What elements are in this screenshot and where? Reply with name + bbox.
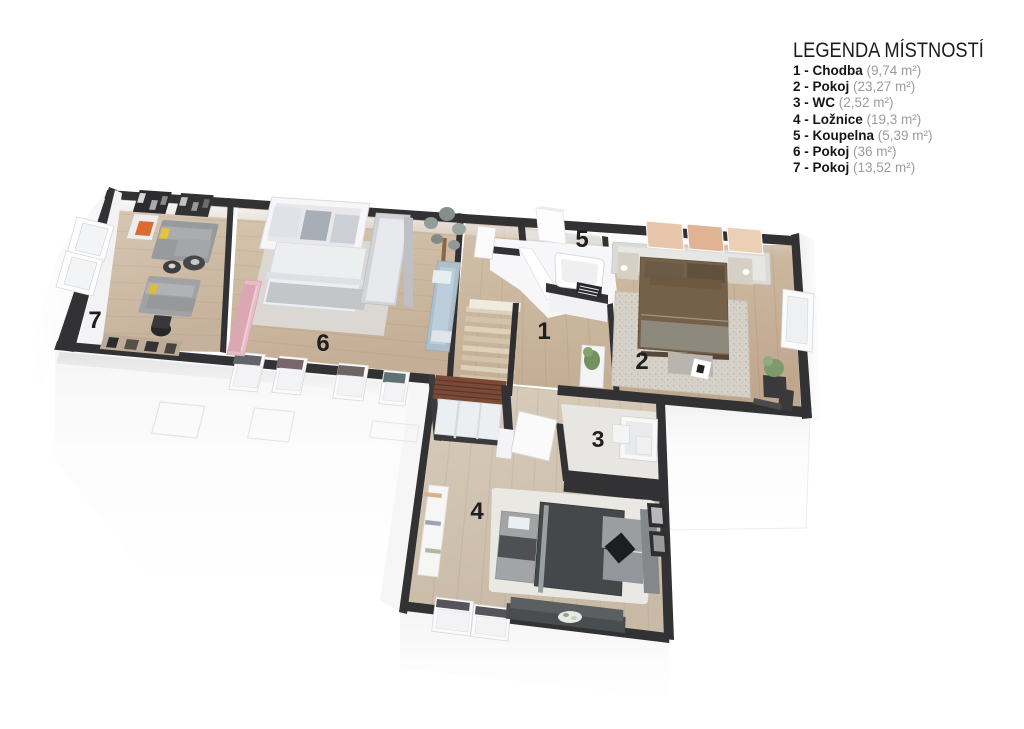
svg-text:2: 2 xyxy=(635,348,648,375)
svg-text:4: 4 xyxy=(470,498,484,525)
svg-text:3: 3 xyxy=(592,426,605,452)
svg-text:5: 5 xyxy=(575,226,588,253)
svg-text:7: 7 xyxy=(88,307,101,334)
svg-text:6: 6 xyxy=(316,330,329,357)
svg-text:1: 1 xyxy=(537,318,550,345)
